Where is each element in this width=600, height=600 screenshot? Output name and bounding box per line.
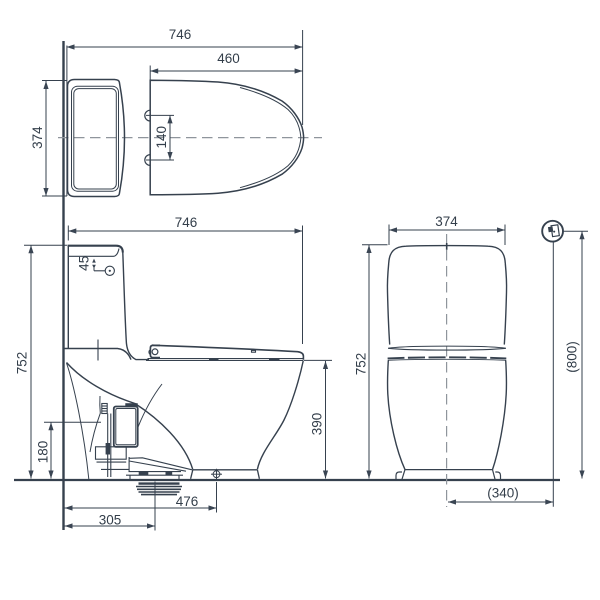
svg-text:180: 180 — [36, 441, 51, 464]
svg-text:746: 746 — [175, 215, 198, 230]
svg-text:45: 45 — [77, 256, 92, 271]
svg-text:(340): (340) — [487, 486, 519, 501]
svg-text:140: 140 — [154, 126, 169, 149]
svg-text:374: 374 — [30, 126, 45, 149]
svg-text:746: 746 — [169, 27, 192, 42]
svg-text:476: 476 — [176, 494, 199, 509]
svg-text:390: 390 — [310, 413, 325, 436]
svg-text:(800): (800) — [565, 341, 580, 373]
svg-text:460: 460 — [217, 51, 240, 66]
svg-text:374: 374 — [435, 214, 458, 229]
svg-text:752: 752 — [15, 352, 30, 375]
svg-text:752: 752 — [354, 353, 369, 376]
svg-text:305: 305 — [99, 513, 122, 528]
